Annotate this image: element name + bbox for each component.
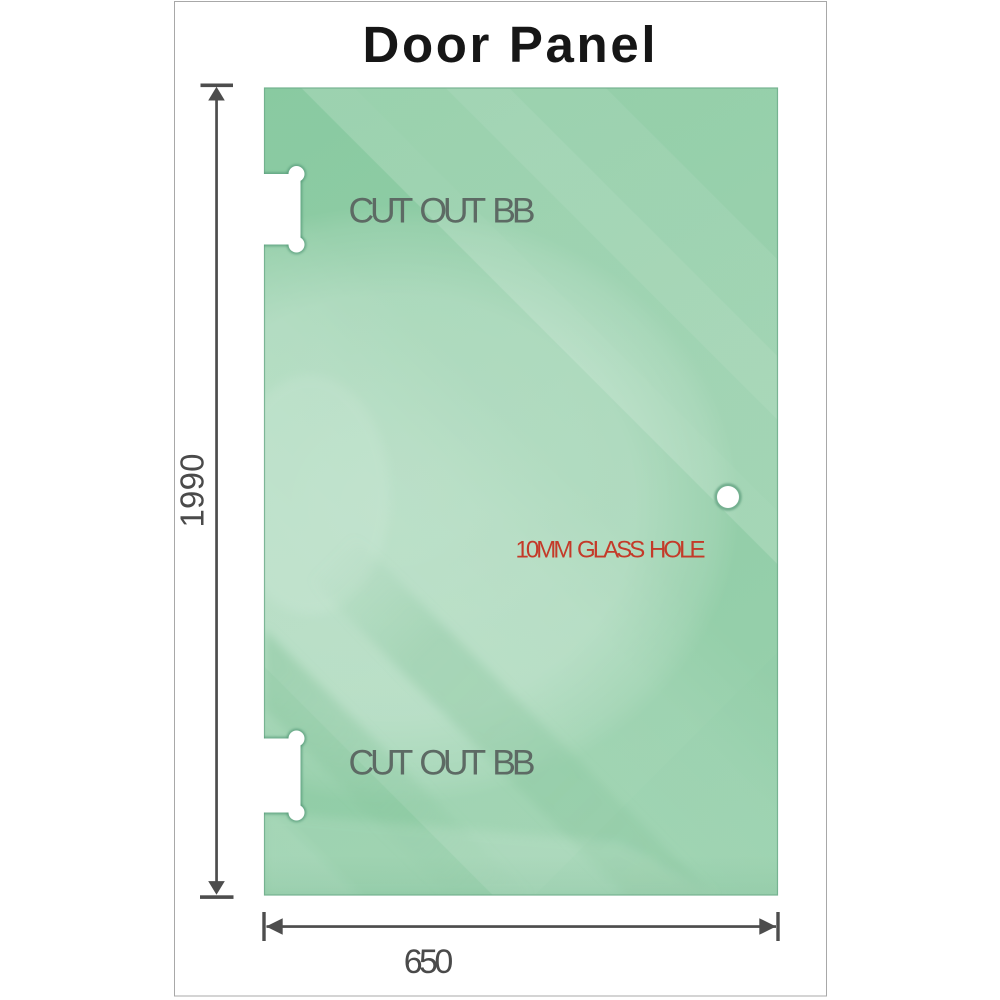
svg-text:1990: 1990 xyxy=(174,454,211,528)
svg-text:10MM GLASS HOLE: 10MM GLASS HOLE xyxy=(516,537,706,564)
svg-text:650: 650 xyxy=(404,943,454,981)
svg-text:Door Panel: Door Panel xyxy=(363,16,656,73)
svg-text:CUT OUT BB: CUT OUT BB xyxy=(349,743,536,783)
svg-text:CUT OUT BB: CUT OUT BB xyxy=(349,191,536,231)
